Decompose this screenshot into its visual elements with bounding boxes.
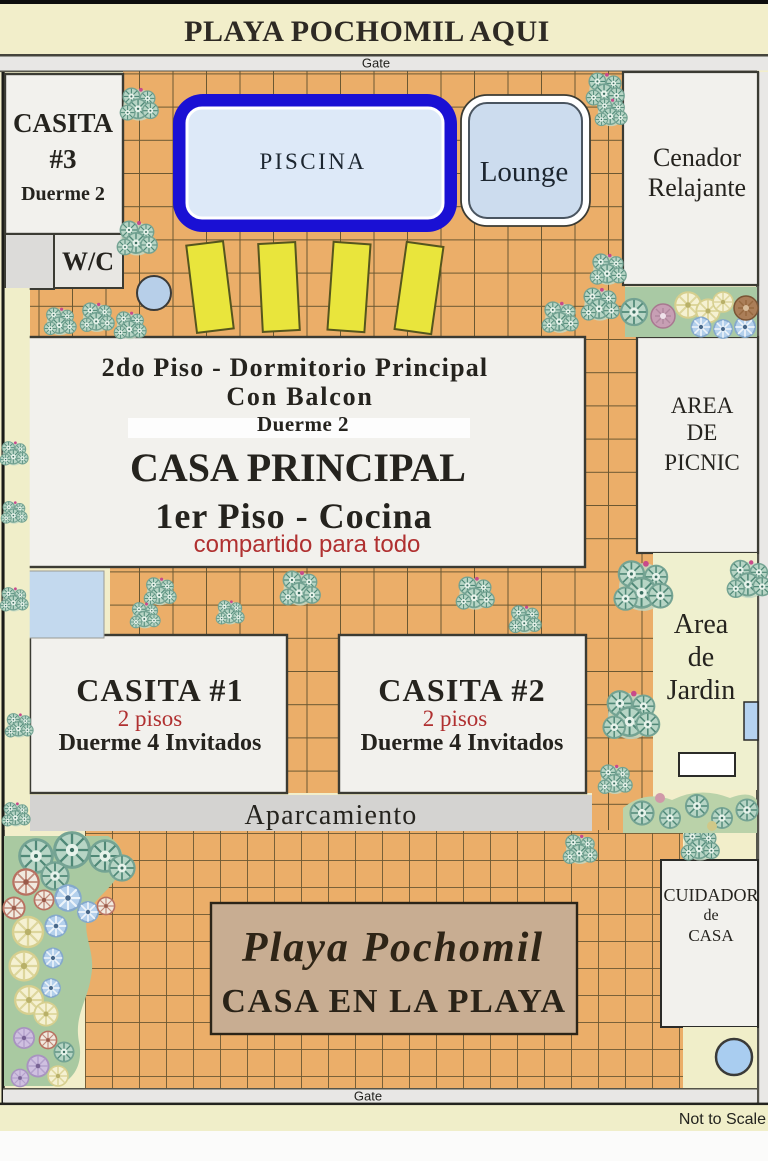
svg-text:Jardin: Jardin [667,675,735,706]
svg-text:Not to Scale: Not to Scale [679,1111,766,1128]
svg-text:Duerme 4 Invitados: Duerme 4 Invitados [361,730,564,756]
svg-text:de: de [703,907,718,924]
svg-text:2 pisos: 2 pisos [118,706,183,731]
svg-text:PLAYA POCHOMIL AQUI: PLAYA POCHOMIL AQUI [184,15,550,48]
svg-text:1er Piso - Cocina: 1er Piso - Cocina [155,496,432,536]
svg-text:de: de [688,642,714,673]
svg-text:2 pisos: 2 pisos [423,706,488,731]
svg-text:Cenador: Cenador [653,143,741,172]
svg-text:Aparcamiento: Aparcamiento [245,800,418,831]
svg-text:CASITA: CASITA [13,108,114,138]
svg-text:Playa Pochomil: Playa Pochomil [241,925,544,971]
svg-text:CASITA #2: CASITA #2 [378,672,546,708]
svg-text:W/C: W/C [62,247,114,276]
svg-text:Lounge: Lounge [480,156,569,188]
svg-text:AREA: AREA [671,393,734,418]
svg-text:Relajante: Relajante [648,173,746,202]
svg-text:Con Balcon: Con Balcon [226,382,373,411]
svg-text:Duerme 2: Duerme 2 [21,183,105,205]
svg-text:2do Piso - Dormitorio Principa: 2do Piso - Dormitorio Principal [102,353,489,382]
svg-text:CASITA #1: CASITA #1 [76,672,244,708]
svg-text:PICNIC: PICNIC [664,450,739,475]
svg-text:Duerme 2: Duerme 2 [257,412,349,436]
svg-text:CUIDADOR: CUIDADOR [663,885,758,905]
svg-text:compartido para todo: compartido para todo [194,531,421,558]
svg-text:Duerme 4 Invitados: Duerme 4 Invitados [59,730,262,756]
svg-text:#3: #3 [50,144,77,174]
svg-text:Area: Area [674,609,729,640]
svg-text:Gate: Gate [354,1089,382,1104]
svg-text:PISCINA: PISCINA [260,149,367,174]
svg-text:CASA PRINCIPAL: CASA PRINCIPAL [130,445,466,490]
svg-text:CASA EN LA PLAYA: CASA EN LA PLAYA [221,983,566,1020]
svg-text:DE: DE [687,420,718,445]
svg-text:Gate: Gate [362,56,390,71]
svg-text:CASA: CASA [688,926,734,945]
